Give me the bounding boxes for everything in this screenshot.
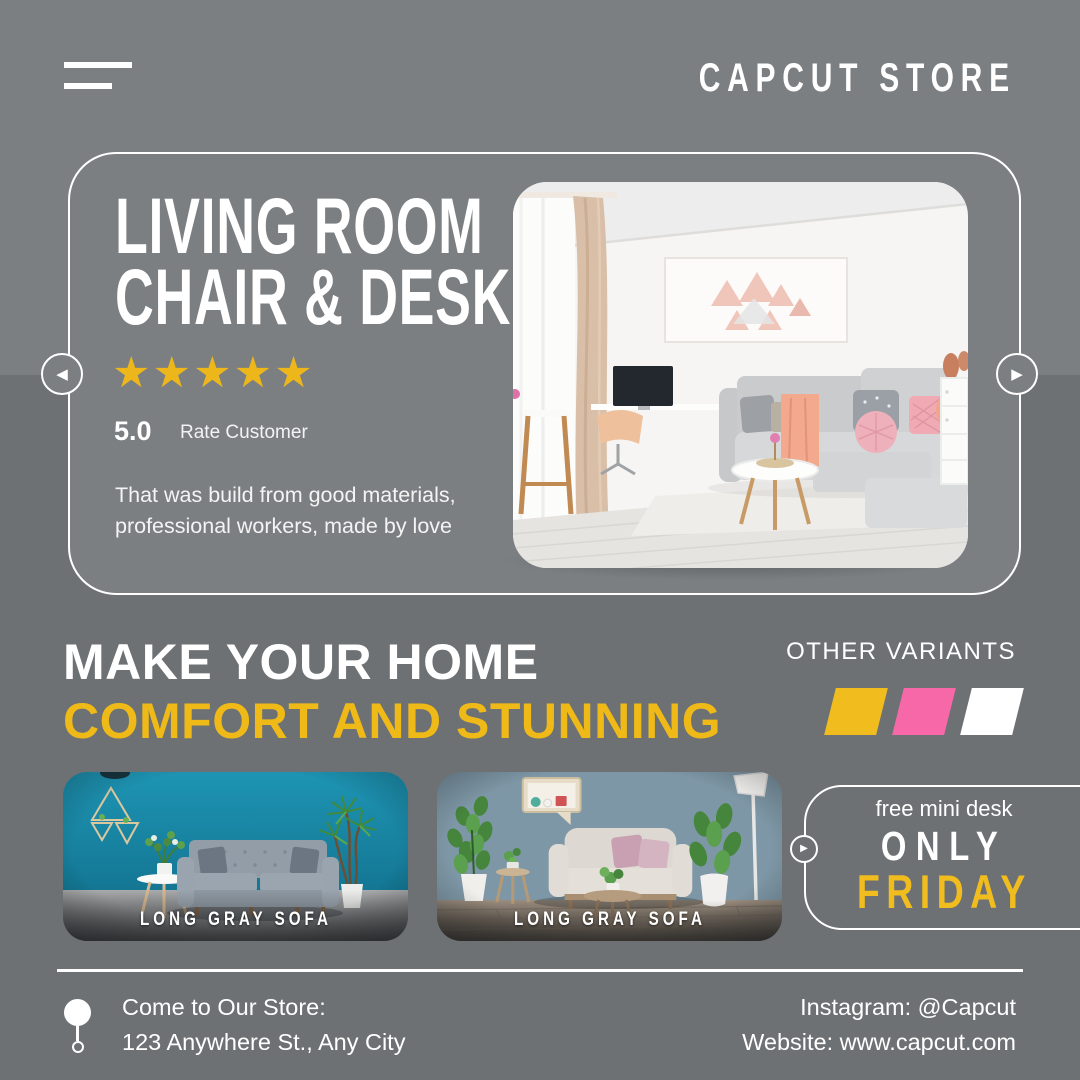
hero-title-line1: LIVING ROOM	[115, 190, 511, 261]
hero-description-line2: professional workers, made by love	[115, 514, 452, 538]
brand-logo: CAPCUT STORE	[699, 56, 1016, 101]
variant-swatch-pink[interactable]	[892, 688, 956, 735]
offer-line2: FRIDAY	[806, 864, 1080, 919]
living-room-photo	[513, 182, 968, 568]
next-icon: ▶	[1011, 367, 1023, 382]
store-address: Come to Our Store: 123 Anywhere St., Any…	[122, 990, 405, 1060]
footer-divider	[57, 969, 1023, 972]
hero-title-line2: CHAIR & DESK	[115, 261, 511, 332]
store-address-line2: 123 Anywhere St., Any City	[122, 1029, 405, 1055]
menu-bar	[64, 83, 112, 89]
offer-arrow-icon: ▶	[800, 844, 808, 854]
variant-swatches	[830, 688, 1018, 735]
product-label: LONG GRAY SOFA	[437, 909, 782, 931]
star-rating: ★★★★★	[112, 352, 315, 395]
variants-label: OTHER VARIANTS	[786, 638, 1016, 666]
prev-icon: ◀	[56, 367, 68, 382]
product-card-1[interactable]: LONG GRAY SOFA	[63, 772, 408, 941]
offer-tag[interactable]: free mini desk ONLY FRIDAY	[804, 785, 1080, 930]
website-url[interactable]: Website: www.capcut.com	[742, 1029, 1016, 1055]
rating-label: Rate Customer	[180, 422, 308, 444]
variant-swatch-yellow[interactable]	[824, 688, 888, 735]
prev-button[interactable]: ◀	[41, 353, 83, 395]
location-pin-icon	[64, 999, 91, 1053]
promo-headline-line2: COMFORT AND STUNNING	[63, 692, 721, 750]
product-label: LONG GRAY SOFA	[63, 909, 408, 931]
promo-headline-line1: MAKE YOUR HOME	[63, 633, 539, 691]
product-card-2[interactable]: LONG GRAY SOFA	[437, 772, 782, 941]
hero-description-line1: That was build from good materials,	[115, 483, 456, 507]
hero-card: LIVING ROOM CHAIR & DESK ★★★★★ 5.0 Rate …	[68, 152, 1021, 595]
instagram-handle[interactable]: Instagram: @Capcut	[800, 994, 1016, 1020]
menu-icon[interactable]	[64, 62, 132, 89]
offer-tagline: free mini desk	[806, 796, 1080, 822]
store-address-line1: Come to Our Store:	[122, 994, 326, 1020]
next-button[interactable]: ▶	[996, 353, 1038, 395]
rating-value: 5.0	[114, 416, 152, 447]
hero-description: That was build from good materials, prof…	[115, 480, 456, 542]
social-links: Instagram: @Capcut Website: www.capcut.c…	[742, 990, 1016, 1060]
variant-swatch-white[interactable]	[960, 688, 1024, 735]
menu-bar	[64, 62, 132, 68]
offer-line1: ONLY	[806, 823, 1080, 870]
poster: CAPCUT STORE LIVING ROOM CHAIR & DESK ★★…	[0, 0, 1080, 1080]
offer-arrow-button[interactable]: ▶	[790, 835, 818, 863]
